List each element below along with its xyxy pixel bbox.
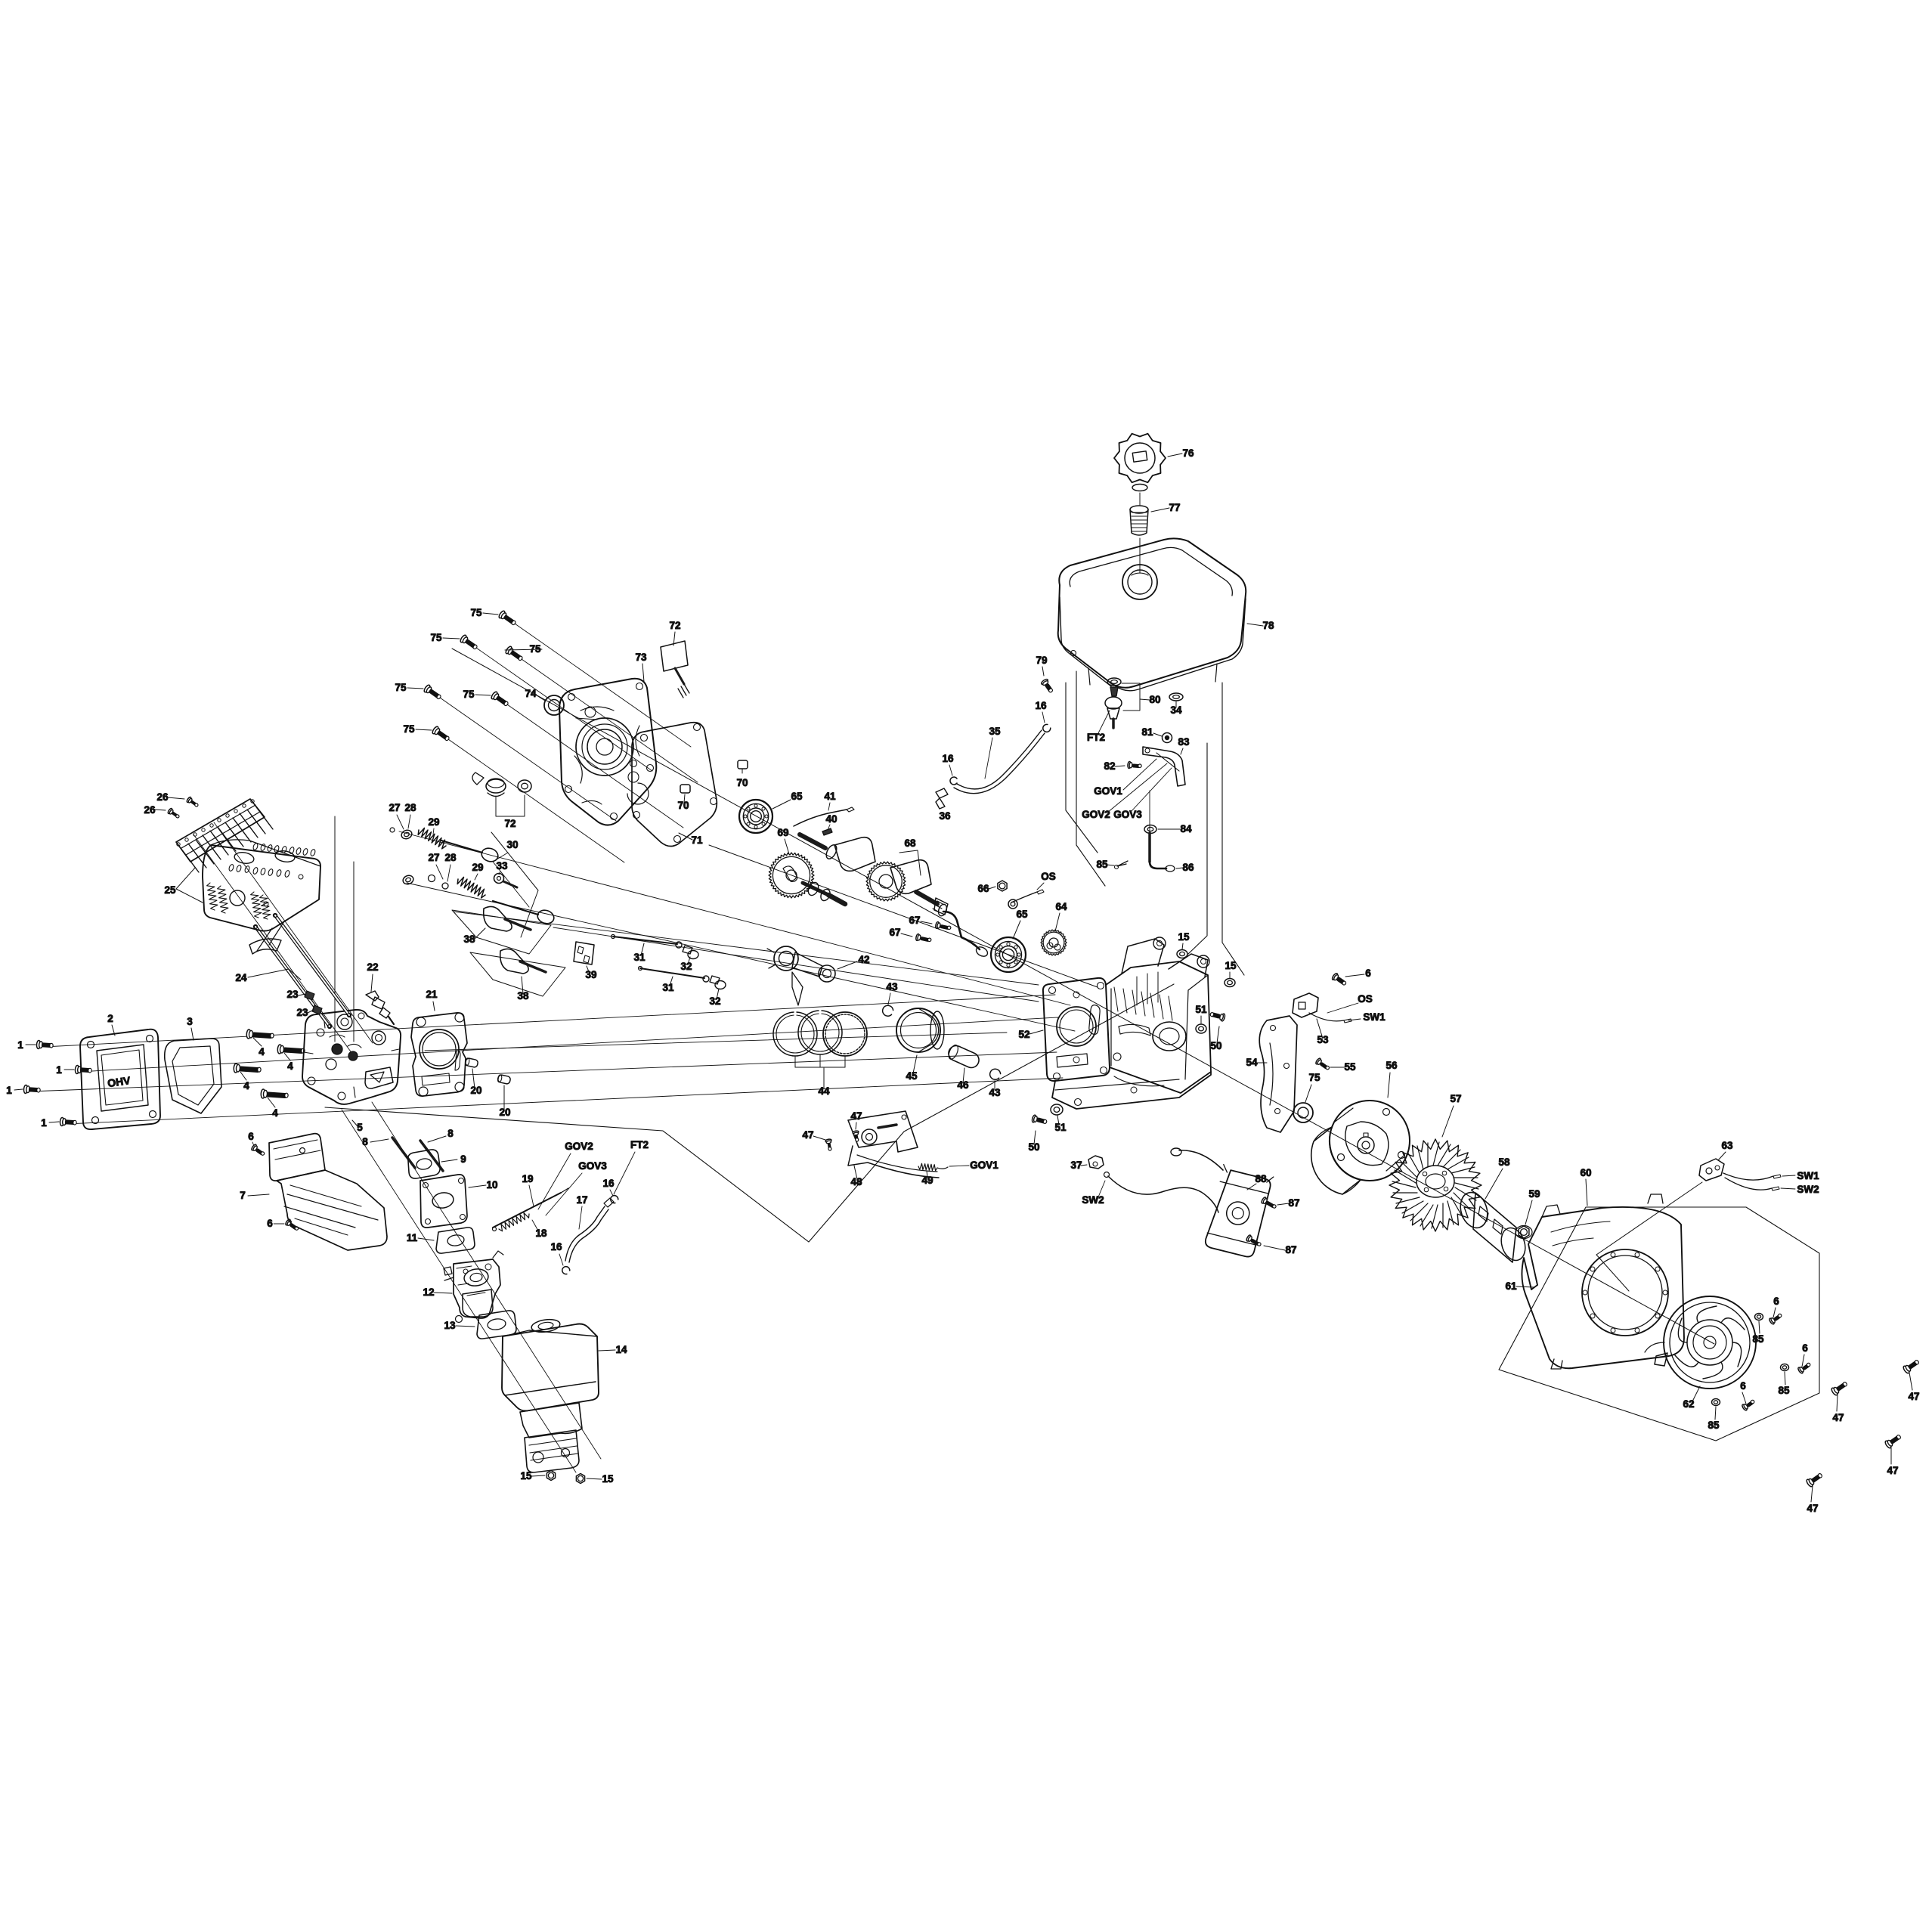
- svg-text:47: 47: [1887, 1465, 1898, 1476]
- svg-text:4: 4: [259, 1046, 265, 1057]
- svg-text:SW2: SW2: [1082, 1194, 1104, 1206]
- svg-text:75: 75: [470, 607, 482, 618]
- svg-text:16: 16: [602, 1178, 615, 1189]
- svg-text:59: 59: [1528, 1188, 1540, 1200]
- svg-text:73: 73: [635, 652, 647, 663]
- svg-text:85: 85: [1752, 1333, 1764, 1345]
- svg-text:63: 63: [1721, 1140, 1733, 1151]
- svg-text:85: 85: [1708, 1420, 1720, 1431]
- svg-text:30: 30: [506, 839, 518, 850]
- svg-text:6: 6: [1365, 968, 1371, 979]
- svg-text:47: 47: [1908, 1391, 1919, 1402]
- svg-text:6: 6: [1740, 1380, 1746, 1392]
- svg-text:15: 15: [1178, 931, 1190, 943]
- svg-text:39: 39: [585, 969, 596, 980]
- svg-text:4: 4: [243, 1080, 249, 1091]
- svg-text:28: 28: [404, 802, 416, 813]
- svg-text:GOV2: GOV2: [1082, 809, 1110, 820]
- svg-text:1: 1: [56, 1064, 62, 1076]
- svg-text:82: 82: [1104, 760, 1115, 772]
- svg-text:6: 6: [267, 1218, 273, 1229]
- svg-text:19: 19: [522, 1173, 533, 1184]
- svg-text:3: 3: [187, 1016, 193, 1027]
- svg-text:50: 50: [1210, 1040, 1221, 1051]
- svg-text:66: 66: [977, 883, 989, 894]
- svg-text:1: 1: [17, 1039, 23, 1051]
- svg-text:GOV3: GOV3: [1113, 809, 1142, 820]
- svg-text:2: 2: [107, 1013, 113, 1024]
- svg-text:74: 74: [525, 688, 537, 699]
- svg-text:16: 16: [942, 753, 954, 764]
- svg-text:4: 4: [287, 1060, 293, 1072]
- svg-text:14: 14: [615, 1344, 627, 1355]
- svg-text:29: 29: [472, 862, 483, 873]
- svg-text:33: 33: [496, 860, 508, 872]
- svg-text:47: 47: [802, 1129, 813, 1141]
- svg-text:9: 9: [460, 1153, 466, 1165]
- svg-text:41: 41: [824, 791, 836, 802]
- svg-text:28: 28: [444, 852, 457, 863]
- svg-text:23: 23: [286, 989, 299, 1000]
- svg-text:31: 31: [662, 982, 674, 993]
- svg-text:7: 7: [240, 1190, 246, 1201]
- svg-text:20: 20: [470, 1085, 481, 1096]
- svg-text:27: 27: [428, 852, 439, 863]
- svg-text:86: 86: [1182, 862, 1194, 873]
- svg-text:36: 36: [939, 810, 951, 822]
- svg-text:61: 61: [1505, 1280, 1517, 1292]
- svg-text:32: 32: [680, 961, 692, 972]
- svg-text:13: 13: [444, 1320, 456, 1331]
- svg-text:69: 69: [777, 827, 788, 838]
- svg-text:15: 15: [1225, 960, 1237, 971]
- svg-text:51: 51: [1195, 1004, 1207, 1015]
- svg-text:70: 70: [677, 800, 689, 811]
- svg-text:83: 83: [1178, 736, 1190, 748]
- svg-text:10: 10: [486, 1179, 497, 1190]
- svg-text:85: 85: [1778, 1385, 1790, 1396]
- svg-text:58: 58: [1498, 1156, 1510, 1168]
- svg-text:75: 75: [395, 682, 407, 693]
- svg-text:1: 1: [6, 1085, 12, 1096]
- svg-text:32: 32: [709, 995, 720, 1007]
- svg-text:75: 75: [430, 632, 442, 643]
- svg-text:75: 75: [403, 723, 415, 735]
- svg-text:38: 38: [463, 933, 475, 945]
- svg-text:79: 79: [1036, 655, 1047, 666]
- svg-text:GOV1: GOV1: [970, 1160, 999, 1171]
- svg-text:84: 84: [1180, 823, 1192, 834]
- svg-text:56: 56: [1386, 1060, 1398, 1071]
- svg-text:87: 87: [1285, 1244, 1296, 1255]
- svg-text:80: 80: [1149, 694, 1160, 705]
- svg-text:SW1: SW1: [1363, 1011, 1386, 1023]
- svg-text:87: 87: [1288, 1197, 1299, 1209]
- svg-text:15: 15: [602, 1473, 614, 1485]
- svg-text:65: 65: [791, 791, 803, 802]
- svg-text:81: 81: [1141, 726, 1153, 738]
- svg-text:45: 45: [906, 1070, 918, 1082]
- svg-text:SW1: SW1: [1797, 1170, 1819, 1181]
- svg-text:75: 75: [463, 689, 475, 700]
- svg-text:75: 75: [529, 643, 541, 655]
- svg-text:62: 62: [1683, 1398, 1694, 1410]
- svg-text:52: 52: [1018, 1029, 1029, 1040]
- svg-text:47: 47: [1832, 1412, 1844, 1423]
- svg-text:40: 40: [825, 813, 837, 825]
- svg-text:8: 8: [362, 1136, 368, 1147]
- svg-text:57: 57: [1450, 1093, 1461, 1104]
- svg-text:47: 47: [1807, 1503, 1818, 1514]
- svg-text:64: 64: [1055, 901, 1067, 912]
- svg-text:20: 20: [499, 1107, 510, 1118]
- svg-text:67: 67: [909, 915, 920, 926]
- svg-text:42: 42: [858, 954, 869, 965]
- svg-text:4: 4: [272, 1107, 278, 1119]
- svg-text:GOV1: GOV1: [1094, 785, 1122, 797]
- svg-text:OS: OS: [1041, 871, 1056, 882]
- svg-text:GOV3: GOV3: [578, 1160, 607, 1172]
- svg-text:17: 17: [576, 1194, 587, 1206]
- svg-text:OS: OS: [1358, 993, 1373, 1005]
- svg-text:47: 47: [850, 1110, 862, 1122]
- svg-text:5: 5: [357, 1122, 363, 1133]
- svg-text:6: 6: [1773, 1296, 1779, 1307]
- svg-text:SW2: SW2: [1797, 1184, 1819, 1195]
- svg-text:77: 77: [1169, 502, 1180, 513]
- svg-text:71: 71: [691, 834, 703, 846]
- svg-text:78: 78: [1262, 620, 1274, 631]
- svg-text:25: 25: [164, 884, 176, 896]
- svg-text:31: 31: [633, 952, 646, 963]
- svg-text:60: 60: [1580, 1167, 1591, 1178]
- svg-text:15: 15: [520, 1470, 532, 1482]
- svg-text:55: 55: [1344, 1061, 1356, 1073]
- svg-text:24: 24: [235, 972, 247, 983]
- svg-text:6: 6: [248, 1131, 254, 1142]
- svg-text:65: 65: [1016, 909, 1028, 920]
- svg-text:70: 70: [736, 777, 748, 788]
- svg-text:54: 54: [1246, 1057, 1258, 1068]
- svg-text:67: 67: [889, 927, 900, 938]
- svg-text:6: 6: [1802, 1342, 1808, 1354]
- svg-text:8: 8: [447, 1128, 454, 1139]
- svg-text:85: 85: [1096, 859, 1108, 870]
- svg-text:16: 16: [1035, 700, 1047, 711]
- svg-text:FT2: FT2: [1087, 732, 1105, 743]
- svg-text:51: 51: [1054, 1122, 1067, 1133]
- svg-text:35: 35: [989, 726, 1001, 737]
- svg-text:22: 22: [367, 961, 378, 973]
- svg-text:GOV2: GOV2: [565, 1141, 593, 1152]
- svg-text:26: 26: [144, 804, 156, 816]
- svg-text:23: 23: [296, 1007, 308, 1018]
- svg-text:29: 29: [428, 816, 439, 828]
- svg-text:16: 16: [550, 1241, 562, 1252]
- svg-text:76: 76: [1182, 447, 1194, 459]
- svg-text:88: 88: [1255, 1173, 1267, 1184]
- svg-text:53: 53: [1317, 1034, 1329, 1045]
- svg-text:11: 11: [407, 1232, 418, 1243]
- svg-text:75: 75: [1308, 1072, 1321, 1083]
- svg-text:26: 26: [156, 791, 169, 803]
- svg-text:72: 72: [669, 620, 680, 631]
- svg-text:27: 27: [389, 802, 400, 813]
- svg-text:43: 43: [886, 981, 898, 992]
- svg-text:FT2: FT2: [630, 1139, 649, 1150]
- svg-text:1: 1: [41, 1117, 47, 1129]
- svg-text:68: 68: [904, 838, 916, 849]
- svg-text:72: 72: [504, 818, 516, 829]
- svg-text:12: 12: [423, 1286, 434, 1298]
- svg-text:21: 21: [426, 989, 438, 1000]
- svg-text:37: 37: [1070, 1160, 1082, 1171]
